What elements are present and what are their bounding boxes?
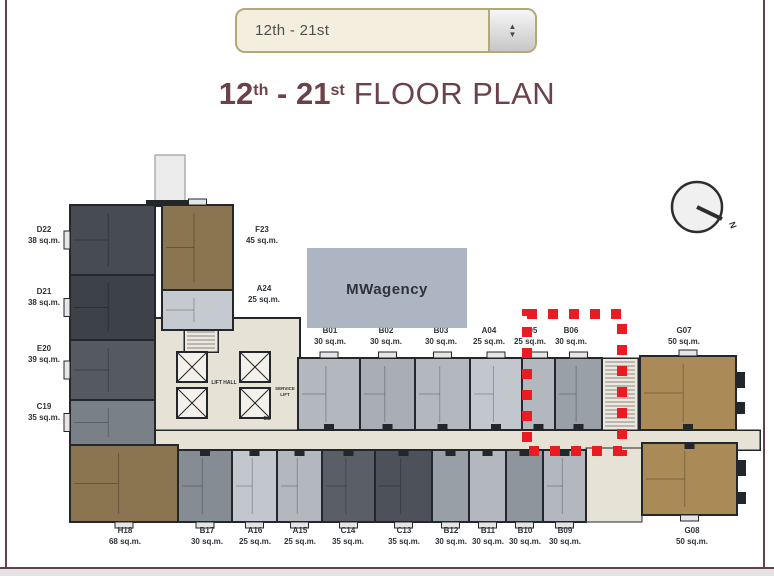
unit-B11 (469, 450, 506, 522)
unit-door (250, 450, 260, 456)
unit-label-area: 25 sq.m. (284, 537, 316, 546)
unit-door (483, 450, 493, 456)
plan-decoration (736, 402, 745, 414)
unit-door (446, 450, 456, 456)
balcony (570, 352, 588, 358)
unit-label-id: G08 (684, 526, 700, 535)
unit-label-id: H18 (118, 526, 133, 535)
balcony (487, 352, 505, 358)
floor-plan-page: 12th - 21st ▲ ▼ 12th - 21st FLOOR PLAN D… (0, 0, 774, 576)
plan-decoration (155, 155, 185, 203)
balcony (189, 199, 207, 205)
unit-label-id: C13 (397, 526, 412, 535)
unit-label-area: 30 sq.m. (472, 537, 504, 546)
unit-label-id: B11 (481, 526, 496, 535)
unit-label-area: 50 sq.m. (668, 337, 700, 346)
unit-label-area: 25 sq.m. (473, 337, 505, 346)
unit-label-area: 38 sq.m. (28, 298, 60, 307)
unit-label-id: B12 (444, 526, 459, 535)
core-label: SERVICE (275, 386, 295, 391)
unit-door (534, 424, 544, 430)
watermark-text: MWagency (346, 281, 428, 298)
unit-label-id: B10 (518, 526, 533, 535)
unit-label-id: E20 (37, 344, 52, 353)
floor-plan-svg: D2238 sq.m.D2138 sq.m.E2039 sq.m.C1935 s… (0, 0, 774, 576)
unit-label-area: 35 sq.m. (388, 537, 420, 546)
unit-label-area: 25 sq.m. (514, 337, 546, 346)
unit-label-id: C14 (341, 526, 356, 535)
unit-label-area: 39 sq.m. (28, 355, 60, 364)
unit-door (574, 424, 584, 430)
balcony (64, 361, 70, 379)
balcony (379, 352, 397, 358)
balcony (64, 299, 70, 317)
unit-label-id: A04 (482, 326, 497, 335)
unit-label-id: C19 (37, 402, 52, 411)
unit-B10 (506, 450, 543, 522)
unit-door (683, 424, 693, 430)
compass-north-label: N (727, 220, 739, 230)
unit-label-area: 30 sq.m. (370, 337, 402, 346)
unit-label-id: A16 (248, 526, 263, 535)
unit-label-id: A24 (257, 284, 272, 293)
unit-door (685, 443, 695, 449)
unit-label-area: 30 sq.m. (509, 537, 541, 546)
core-label: LIFT (280, 392, 290, 397)
unit-label-id: G07 (676, 326, 692, 335)
unit-label-area: 25 sq.m. (239, 537, 271, 546)
unit-B12 (432, 450, 469, 522)
unit-label-id: B06 (564, 326, 579, 335)
unit-label-area: 25 sq.m. (248, 295, 280, 304)
unit-label-id: B09 (558, 526, 573, 535)
balcony (320, 352, 338, 358)
unit-label-area: 30 sq.m. (549, 537, 581, 546)
unit-door (383, 424, 393, 430)
unit-door (399, 450, 409, 456)
plan-decoration (737, 492, 746, 504)
balcony (434, 352, 452, 358)
unit-label-area: 30 sq.m. (314, 337, 346, 346)
unit-label-id: D21 (37, 287, 52, 296)
unit-label-id: A15 (293, 526, 308, 535)
balcony (64, 231, 70, 249)
core-label: LIFT HALL (211, 380, 236, 386)
unit-label-area: 35 sq.m. (332, 537, 364, 546)
unit-label-area: 38 sq.m. (28, 236, 60, 245)
balcony (681, 515, 699, 521)
unit-door (344, 450, 354, 456)
unit-label-area: 30 sq.m. (425, 337, 457, 346)
balcony (679, 350, 697, 356)
unit-label-area: 35 sq.m. (28, 413, 60, 422)
unit-label-area: 30 sq.m. (435, 537, 467, 546)
unit-door (520, 450, 530, 456)
unit-label-area: 30 sq.m. (555, 337, 587, 346)
unit-label-area: 30 sq.m. (191, 537, 223, 546)
unit-door (324, 424, 334, 430)
unit-label-id: F23 (255, 225, 269, 234)
plan-decoration (736, 372, 745, 388)
balcony (530, 352, 548, 358)
unit-label-area: 45 sq.m. (246, 236, 278, 245)
open-area (586, 448, 642, 522)
balcony (64, 414, 70, 432)
unit-label-id: D22 (37, 225, 52, 234)
unit-door (295, 450, 305, 456)
plan-decoration (737, 460, 746, 476)
unit-door (491, 424, 501, 430)
unit-door (200, 450, 210, 456)
unit-label-id: B17 (200, 526, 215, 535)
core-label: GB (263, 416, 271, 422)
unit-label-area: 50 sq.m. (676, 537, 708, 546)
unit-door (438, 424, 448, 430)
unit-label-area: 68 sq.m. (109, 537, 141, 546)
unit-door (560, 450, 570, 456)
